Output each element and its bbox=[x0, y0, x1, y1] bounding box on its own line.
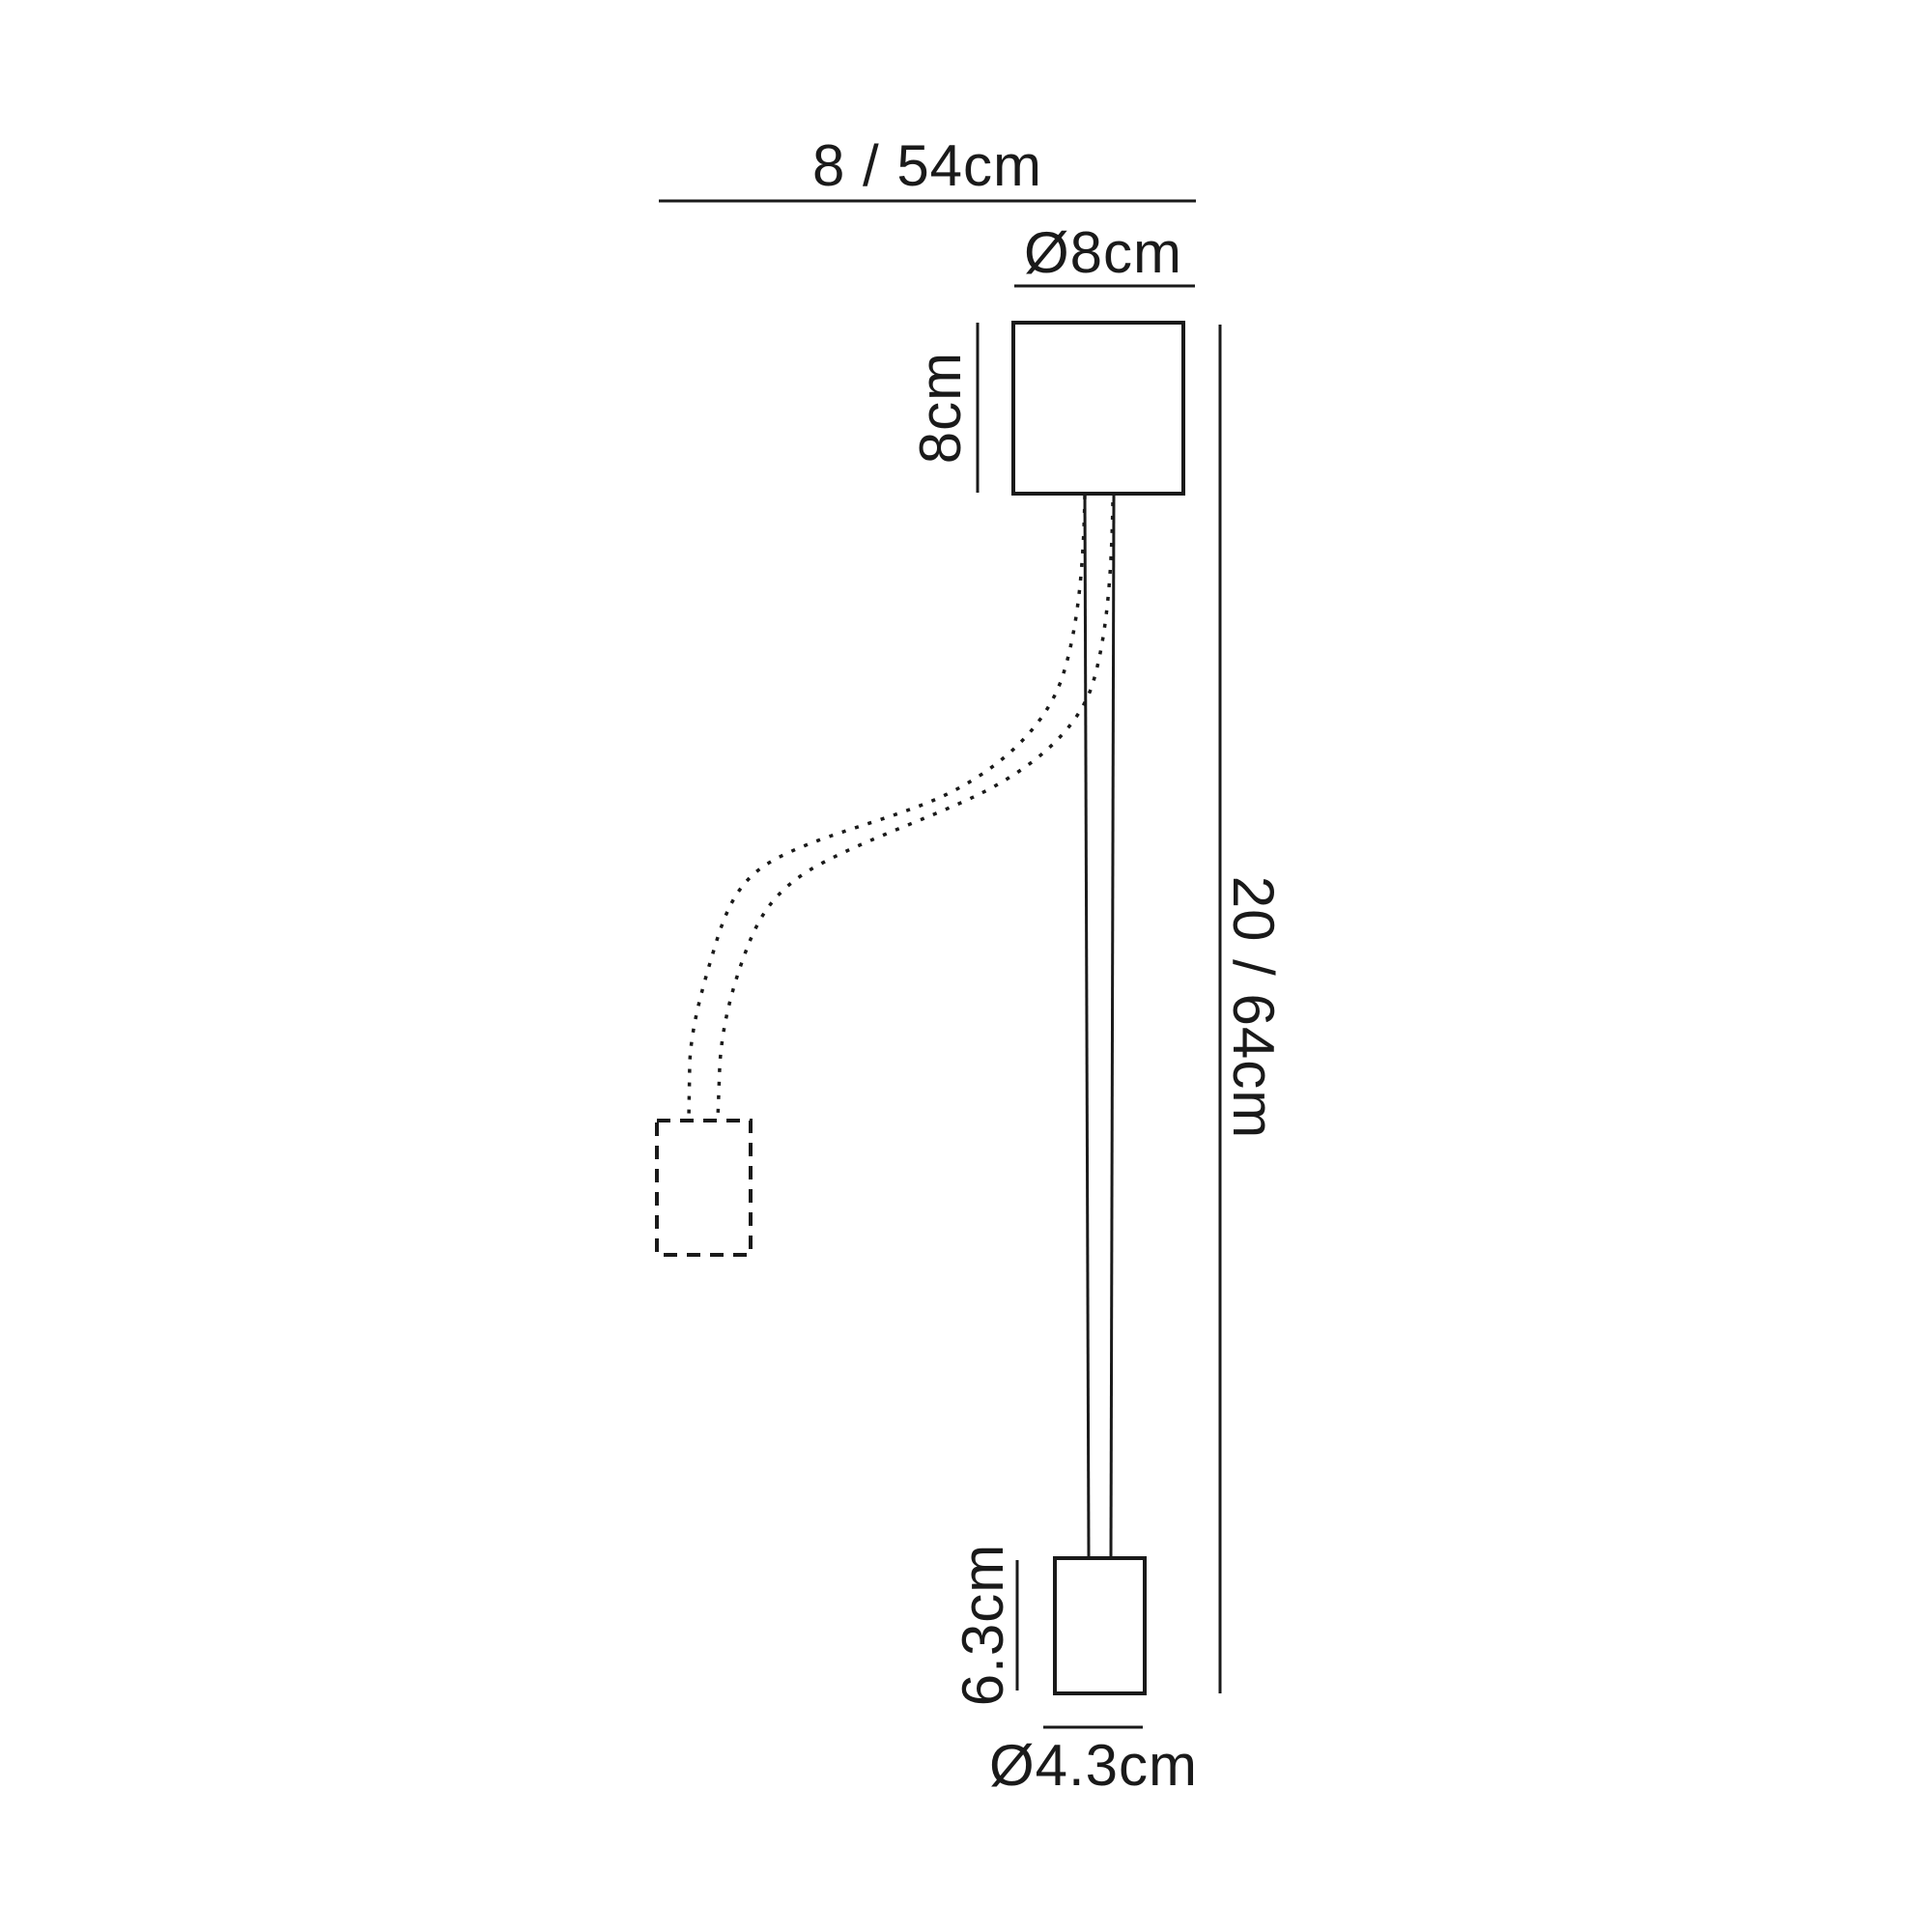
head-diameter-label: Ø4.3cm bbox=[900, 1734, 1287, 1798]
canopy-height-label: 8cm bbox=[909, 214, 973, 601]
stem-left-edge bbox=[1085, 496, 1089, 1557]
lamp-head-outline bbox=[1055, 1558, 1145, 1693]
flex-arm-dotted-left-edge bbox=[689, 496, 1085, 1121]
overall-width-label: 8 / 54cm bbox=[734, 134, 1121, 198]
overall-height-label: 20 / 64cm bbox=[1221, 814, 1285, 1201]
canopy-outline bbox=[1013, 323, 1183, 494]
dimension-diagram: 8 / 54cm Ø8cm 8cm 20 / 64cm 6.3cm Ø4.3cm bbox=[0, 0, 1932, 1932]
reader-head-dashed-outline bbox=[657, 1121, 751, 1255]
stem-right-edge bbox=[1111, 496, 1114, 1557]
